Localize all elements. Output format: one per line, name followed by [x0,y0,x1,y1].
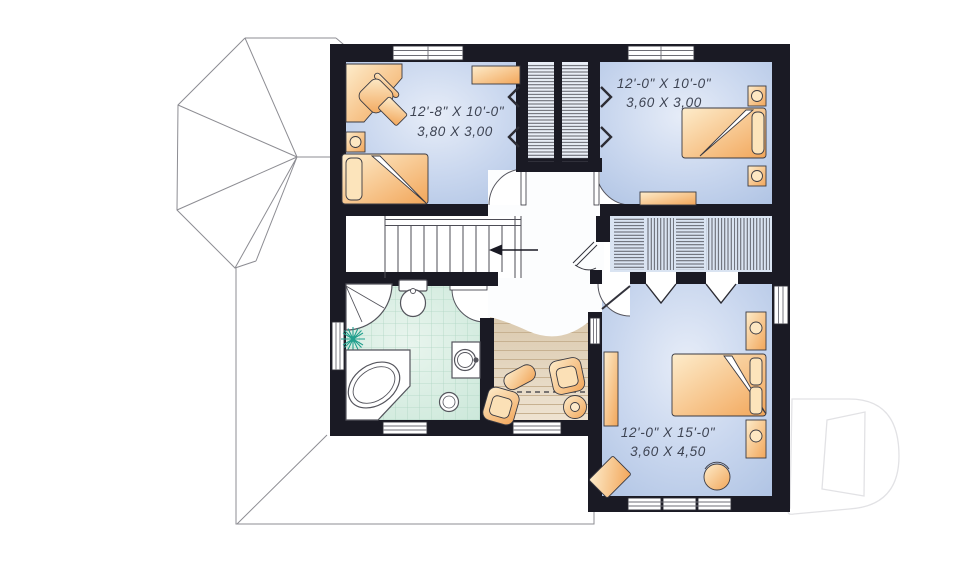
bedroom-3-dimensions-imperial: 12'-0" X 15'-0" [621,425,716,440]
floor-plan-svg: 12'-8" X 10'-0" 3,80 X 3,00 12'-0" X 10'… [0,0,960,569]
floor-plan-page: 12'-8" X 10'-0" 3,80 X 3,00 12'-0" X 10'… [0,0,960,569]
wall-hall-closet [596,216,610,242]
window-den-bottom [513,422,561,434]
wall-right [772,44,790,512]
wall-closet-divider [554,62,562,164]
walkin-hatch-2 [646,218,674,270]
wall-closet2-east [588,62,600,164]
toilet-icon [399,280,427,317]
walkin-hatch-5 [734,218,770,270]
bedroom-1-dimensions-metric: 3,80 X 3,00 [417,124,493,139]
wall-walkin-south-2 [676,272,706,284]
window-bathroom-left [332,322,344,370]
bedroom-1-door-leaf [521,170,526,205]
closet-1-hanger-hatch [528,64,554,162]
closet-2-hanger-hatch [562,64,588,162]
wall-walkin-south-1 [630,272,646,284]
nightstand-icon [346,132,365,152]
nightstand-icon [748,166,766,186]
dresser-icon [472,66,520,84]
walkin-hatch-1 [614,218,644,270]
bed-icon [672,354,766,416]
bed-icon [342,154,428,204]
bedroom-2-dimensions-metric: 3,60 X 3,00 [626,95,702,110]
window-bedroom3-west-wall [590,318,600,344]
window-bedroom3-right [774,286,788,324]
window-bedroom1-top [393,46,463,60]
nightstand-icon [748,86,766,106]
window-bedroom2-top [628,46,694,60]
window-bathroom-bottom [383,422,427,434]
tall-dresser-icon [604,352,618,426]
stool-icon [440,393,459,412]
bedroom-3-dimensions-metric: 3,60 X 4,50 [630,444,706,459]
drummond-logo [788,399,899,514]
plant-icon [341,327,365,351]
bedroom-2-dimensions-imperial: 12'-0" X 10'-0" [617,76,712,91]
walkin-hatch-3 [676,218,704,270]
wall-hall-closet-stub [590,270,602,284]
dresser-icon [640,192,696,205]
nightstand-icon [746,420,766,458]
wall-walkin-south-3 [738,272,772,284]
sink-icon [452,342,480,378]
window-bedroom3-bottom [628,498,731,510]
bed-icon [682,108,766,158]
bedroom-1-dimensions-imperial: 12'-8" X 10'-0" [410,104,505,119]
bedroom-2-door-leaf [594,170,599,205]
logo-inner-d [822,412,865,496]
wall-left [330,44,346,436]
armchair-icon [548,356,586,396]
side-table-icon [564,396,587,419]
wall-bedroom1-south [330,204,488,216]
nightstand-icon [746,312,766,350]
wall-bedroom2-south [600,204,790,216]
walkin-hatch-4 [706,218,732,270]
